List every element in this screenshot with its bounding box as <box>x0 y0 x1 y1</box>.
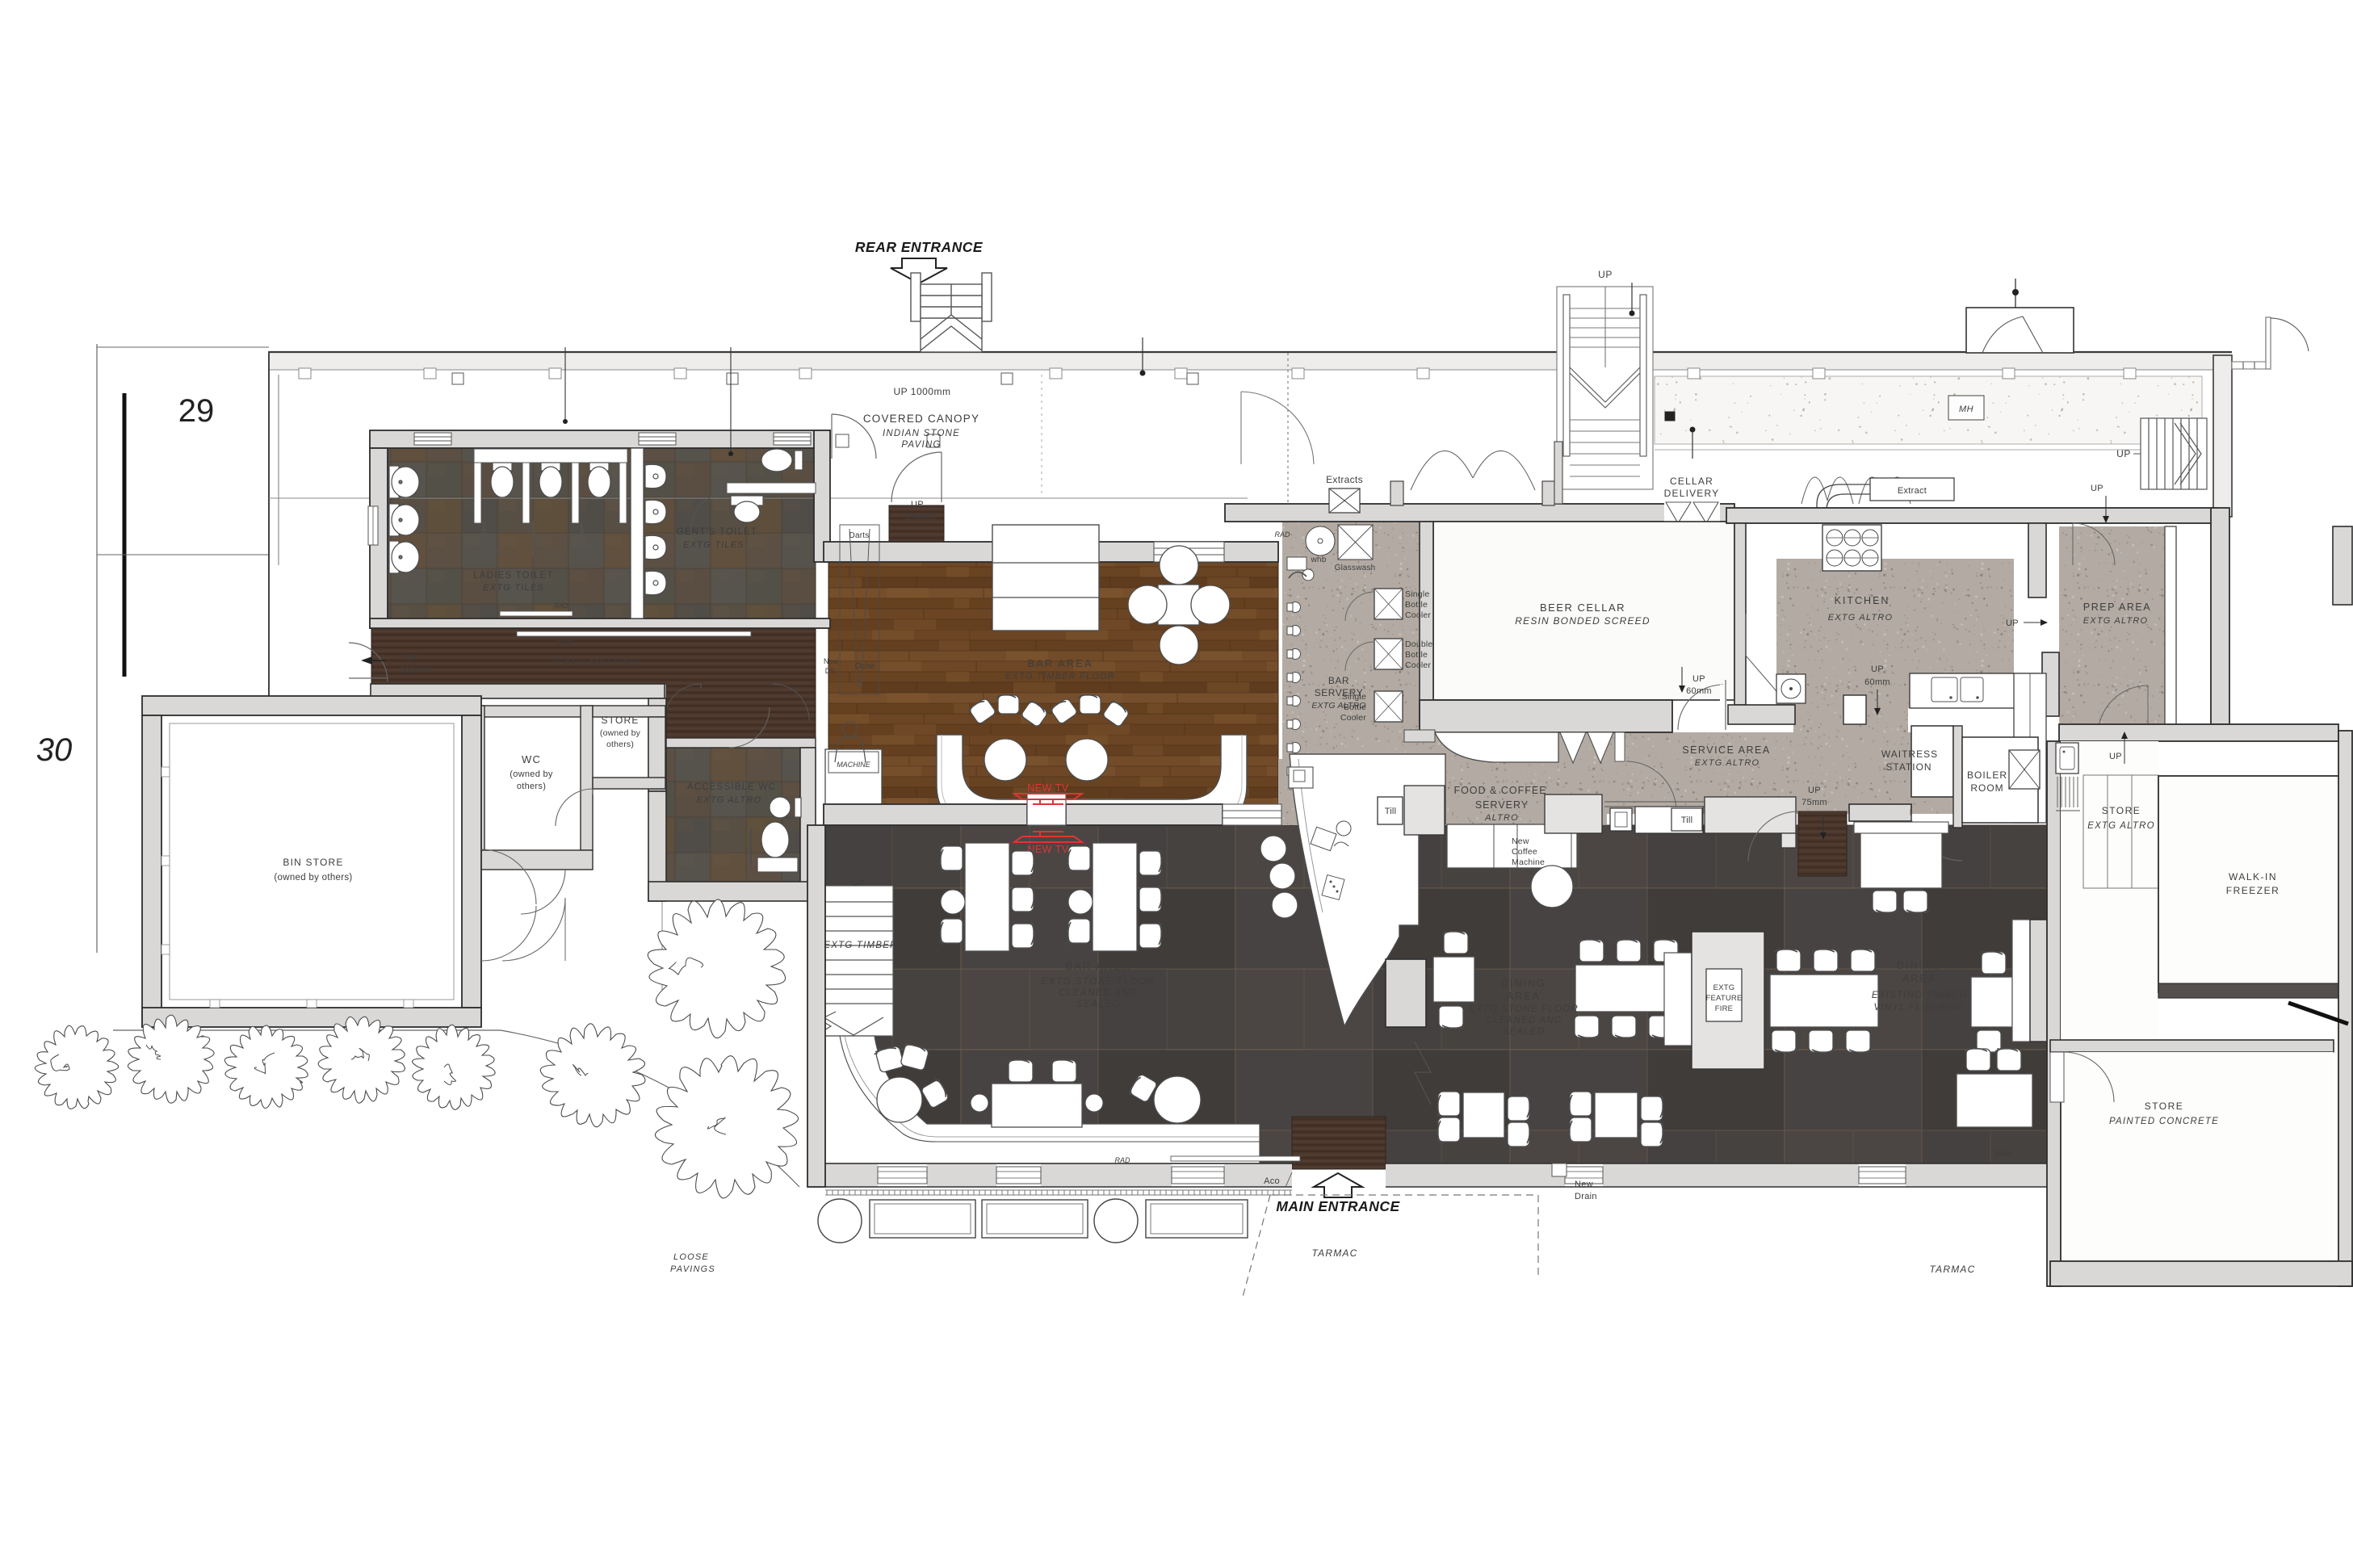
svg-text:RAD: RAD <box>1274 530 1290 539</box>
svg-text:UP: UP <box>2006 618 2019 628</box>
svg-text:Coffee: Coffee <box>1512 847 1537 857</box>
svg-text:(owned by: (owned by <box>600 728 641 738</box>
svg-text:FIRE: FIRE <box>1715 1004 1733 1013</box>
svg-text:Double: Double <box>1405 639 1432 649</box>
svg-text:RAD: RAD <box>1994 1150 2011 1158</box>
svg-text:60mm: 60mm <box>1864 677 1890 687</box>
svg-text:Bottle: Bottle <box>1405 650 1428 660</box>
svg-text:30: 30 <box>36 732 73 768</box>
svg-text:PREP AREA: PREP AREA <box>2083 602 2151 613</box>
svg-text:Bottle: Bottle <box>1405 600 1428 610</box>
svg-text:(owned by others): (owned by others) <box>274 873 352 883</box>
svg-text:SEALED: SEALED <box>1503 1027 1546 1037</box>
svg-text:BAR AREA: BAR AREA <box>1065 960 1130 972</box>
svg-text:EXTG STONE FLOOR: EXTG STONE FLOOR <box>1042 975 1156 987</box>
svg-text:UP: UP <box>1598 269 1613 280</box>
svg-text:Extracts: Extracts <box>1326 474 1363 485</box>
svg-text:ROOM: ROOM <box>1970 782 2003 794</box>
svg-text:RAD: RAD <box>557 639 573 647</box>
svg-text:EXTG: EXTG <box>1713 983 1735 992</box>
svg-text:CELLAR: CELLAR <box>1670 476 1713 487</box>
svg-text:New: New <box>1512 836 1529 846</box>
svg-text:BOILER: BOILER <box>1967 769 2007 781</box>
svg-text:Oche: Oche <box>855 662 875 671</box>
svg-text:Till: Till <box>1681 815 1692 825</box>
svg-text:PAVING: PAVING <box>901 440 941 450</box>
svg-text:EXTG STONE FLOOR: EXTG STONE FLOOR <box>1469 1004 1579 1014</box>
svg-text:STORE: STORE <box>2102 805 2141 816</box>
svg-text:CLEANED AND: CLEANED AND <box>1059 987 1138 998</box>
svg-text:EXTG ALTRO: EXTG ALTRO <box>2087 821 2155 831</box>
svg-text:SERVERY: SERVERY <box>1315 687 1363 698</box>
svg-text:ACCESSIBLE WC: ACCESSIBLE WC <box>687 782 776 792</box>
svg-text:EXTG TILES: EXTG TILES <box>483 583 544 593</box>
svg-text:PAVINGS: PAVINGS <box>670 1264 715 1274</box>
svg-text:PAINTED CONCRETE: PAINTED CONCRETE <box>2109 1117 2219 1126</box>
svg-text:INDIAN STONE: INDIAN STONE <box>883 429 960 438</box>
svg-text:140mm: 140mm <box>905 512 936 522</box>
svg-text:WAITRESS: WAITRESS <box>1881 748 1938 760</box>
svg-text:EXTG MATTING: EXTG MATTING <box>556 656 640 668</box>
svg-text:DINING: DINING <box>1897 960 1942 971</box>
svg-text:RESIN BONDED SCREED: RESIN BONDED SCREED <box>1515 615 1650 627</box>
svg-text:29: 29 <box>178 393 215 429</box>
svg-text:UP: UP <box>2116 448 2131 459</box>
svg-text:LADIES TOILET: LADIES TOILET <box>473 571 554 581</box>
svg-text:FOOD & COFFEE: FOOD & COFFEE <box>1453 785 1546 796</box>
svg-text:STATION: STATION <box>1885 761 1931 773</box>
svg-text:TARMAC: TARMAC <box>1930 1264 1976 1275</box>
svg-text:WALK-IN: WALK-IN <box>2229 871 2277 883</box>
svg-text:UP: UP <box>1808 786 1821 795</box>
svg-text:Cooler: Cooler <box>1405 660 1431 670</box>
svg-text:COVERED CANOPY: COVERED CANOPY <box>863 413 979 425</box>
svg-text:GENT'S TOILET: GENT'S TOILET <box>677 527 757 537</box>
svg-text:UP: UP <box>2091 484 2103 493</box>
svg-text:BAR: BAR <box>1328 675 1349 686</box>
svg-text:UP: UP <box>911 500 924 509</box>
svg-text:others): others) <box>517 782 546 791</box>
svg-text:EXTG TIMBER: EXTG TIMBER <box>824 941 897 950</box>
svg-text:REAR ENTRANCE: REAR ENTRANCE <box>855 239 984 255</box>
svg-text:SEALED: SEALED <box>1076 998 1121 1009</box>
svg-text:ALTRO: ALTRO <box>1484 813 1519 823</box>
svg-text:AREA: AREA <box>1507 991 1541 1002</box>
svg-text:New: New <box>1575 1180 1593 1189</box>
svg-text:Cooler: Cooler <box>1405 610 1431 620</box>
svg-text:MAIN ENTRANCE: MAIN ENTRANCE <box>1276 1198 1400 1214</box>
svg-text:DELIVERY: DELIVERY <box>1664 488 1720 499</box>
svg-text:UP: UP <box>405 653 418 663</box>
svg-text:75mm: 75mm <box>1381 1077 1407 1087</box>
svg-text:EXTG TILES: EXTG TILES <box>683 540 744 550</box>
svg-text:DINING: DINING <box>1501 978 1546 989</box>
svg-text:MH: MH <box>1959 405 1973 414</box>
svg-text:WC: WC <box>522 753 541 765</box>
svg-text:BIN STORE: BIN STORE <box>283 857 343 868</box>
svg-text:BAR AREA: BAR AREA <box>1027 657 1093 669</box>
svg-text:New: New <box>824 657 839 665</box>
svg-text:STORE: STORE <box>601 715 639 726</box>
svg-text:EXTG ALTRO: EXTG ALTRO <box>1828 613 1893 623</box>
svg-text:Extract: Extract <box>1898 486 1927 496</box>
svg-text:UP: UP <box>1871 665 1884 674</box>
svg-text:KITCHEN: KITCHEN <box>1835 595 1890 606</box>
svg-text:LOOSE: LOOSE <box>673 1252 709 1262</box>
svg-text:Darts: Darts <box>849 531 870 540</box>
svg-text:EXTG TIMBER FLOOR: EXTG TIMBER FLOOR <box>1005 672 1115 681</box>
svg-text:SERVERY: SERVERY <box>1475 799 1529 811</box>
svg-text:DS: DS <box>825 667 836 675</box>
svg-text:RAD: RAD <box>555 602 568 610</box>
svg-text:Aco: Aco <box>1264 1176 1280 1186</box>
svg-text:others): others) <box>606 740 634 749</box>
svg-text:(owned by: (owned by <box>510 769 553 779</box>
svg-text:Cooler: Cooler <box>1340 713 1366 723</box>
svg-text:TARMAC: TARMAC <box>1312 1247 1358 1259</box>
svg-text:AREA: AREA <box>1902 973 1936 984</box>
svg-text:180mm: 180mm <box>400 665 430 675</box>
svg-text:UP: UP <box>852 878 865 888</box>
svg-text:STORE: STORE <box>2145 1101 2184 1112</box>
svg-text:BEER CELLAR: BEER CELLAR <box>1540 602 1625 614</box>
svg-text:NEW TV: NEW TV <box>1027 782 1069 794</box>
svg-text:Glasswash: Glasswash <box>1335 564 1376 572</box>
svg-text:SERVICE AREA: SERVICE AREA <box>1682 744 1770 756</box>
svg-text:EXISTING TIMBER: EXISTING TIMBER <box>1872 991 1967 1000</box>
svg-text:Drain: Drain <box>1575 1192 1597 1201</box>
svg-text:UP: UP <box>2109 752 2122 761</box>
svg-text:75mm: 75mm <box>1801 798 1827 807</box>
svg-text:EXTG ALTRO: EXTG ALTRO <box>697 795 761 805</box>
svg-text:UP 1000mm: UP 1000mm <box>894 386 951 397</box>
svg-text:Single: Single <box>1405 589 1429 599</box>
svg-text:Till: Till <box>1385 807 1396 816</box>
svg-text:EXTG ALTRO: EXTG ALTRO <box>2083 616 2148 626</box>
svg-text:EXTG ALTRO: EXTG ALTRO <box>1695 758 1760 768</box>
svg-text:EXTG ALTRO: EXTG ALTRO <box>1311 701 1365 711</box>
svg-text:CLEANED AND: CLEANED AND <box>1486 1016 1562 1025</box>
svg-text:FEATURE: FEATURE <box>1705 994 1742 1003</box>
svg-text:FREEZER: FREEZER <box>2226 885 2280 896</box>
svg-text:UP: UP <box>1692 674 1705 684</box>
svg-text:UP: UP <box>1387 1063 1400 1073</box>
svg-text:Machine: Machine <box>1512 857 1545 867</box>
svg-text:60mm: 60mm <box>1686 686 1712 696</box>
svg-text:VINYL FLOORING: VINYL FLOORING <box>1873 1003 1965 1012</box>
svg-text:whb: whb <box>1311 556 1327 564</box>
